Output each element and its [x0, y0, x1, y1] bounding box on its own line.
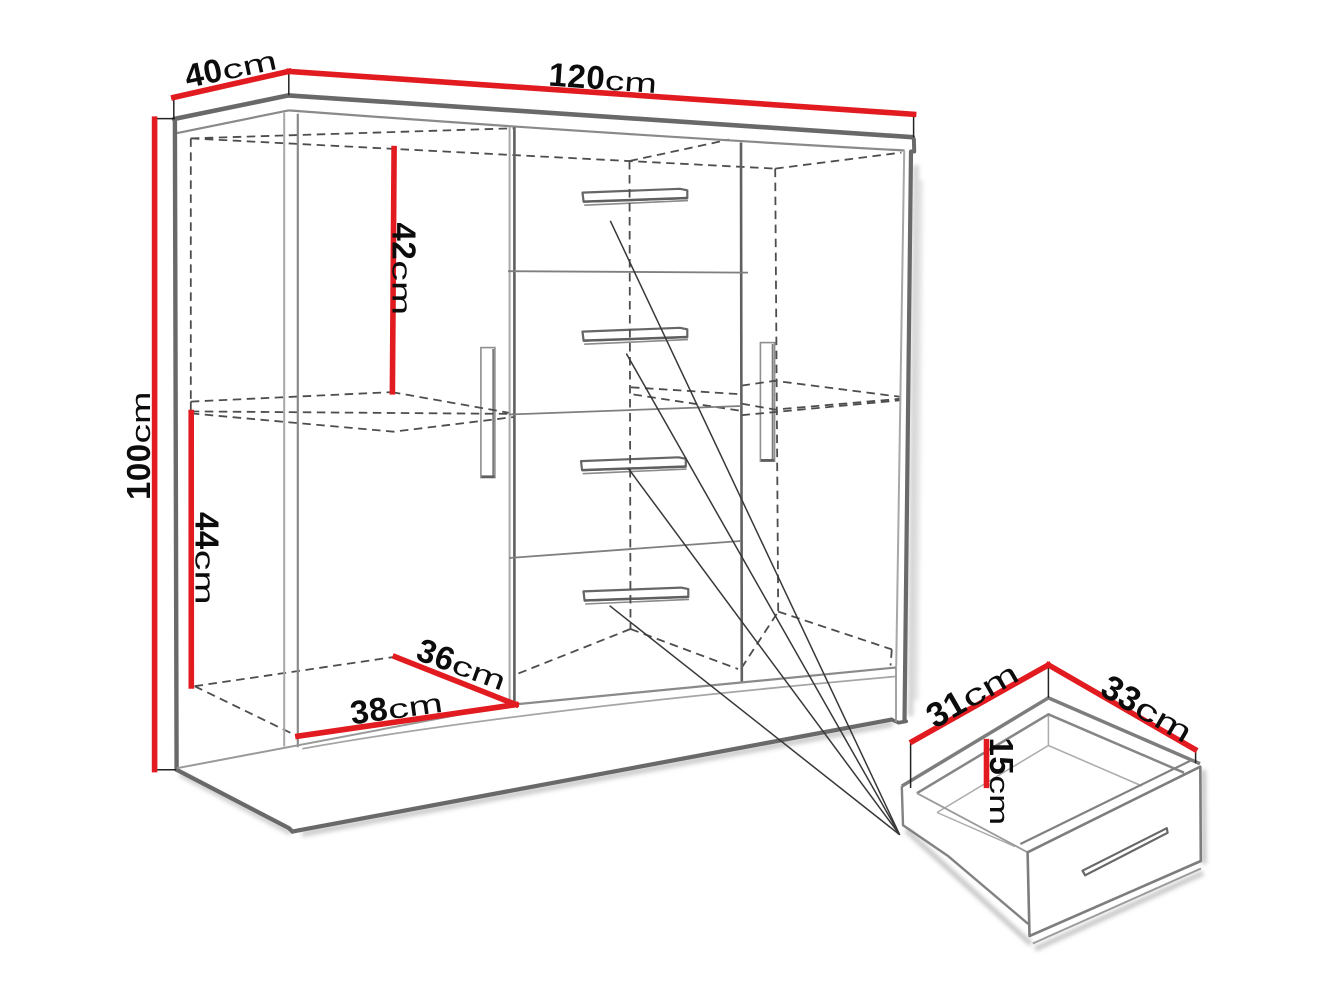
svg-text:42cm: 42cm [386, 223, 423, 316]
svg-text:44cm: 44cm [189, 512, 226, 605]
svg-text:15cm: 15cm [983, 738, 1020, 826]
svg-text:100cm: 100cm [120, 391, 157, 500]
